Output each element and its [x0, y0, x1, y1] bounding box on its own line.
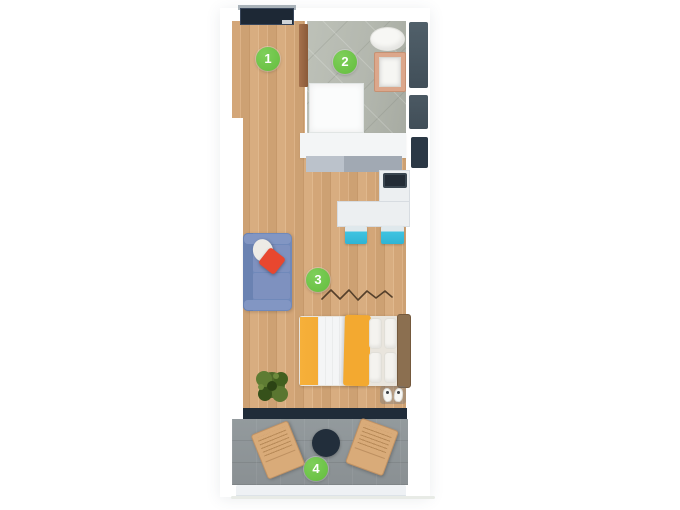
zigzag-cord-icon: [318, 285, 396, 305]
slipper-strap: [397, 391, 400, 394]
balcony-table: [312, 429, 340, 457]
desk-chair: [345, 226, 367, 244]
bed-pillow: [384, 318, 397, 349]
bathroom-door: [299, 24, 308, 87]
bed-pillow: [369, 318, 382, 349]
kitchen-counter: [300, 133, 406, 158]
entrance-door-handle-icon: [282, 20, 292, 24]
plant-icon: [252, 365, 294, 407]
slipper-strap: [386, 391, 389, 394]
room-marker-3[interactable]: 3: [306, 268, 330, 292]
room-marker-1[interactable]: 1: [256, 47, 280, 71]
kitchen-counter-edge-light: [306, 156, 344, 172]
desk-chair: [381, 226, 404, 244]
shower: [309, 83, 364, 133]
bed-pillow: [369, 352, 382, 383]
bed-duvet-fold: [343, 315, 371, 387]
room-marker-2[interactable]: 2: [333, 50, 357, 74]
ground-shadow-line: [231, 496, 435, 499]
desk-wing: [337, 201, 410, 227]
closet-panel: [411, 137, 428, 168]
closet-panel: [409, 22, 428, 88]
sofa-armrest: [244, 300, 291, 310]
bed-pillow: [384, 352, 397, 383]
floorplan-canvas: 1 2 3 4: [0, 0, 680, 510]
sofa-cushion: [253, 273, 290, 299]
room-marker-4[interactable]: 4: [304, 457, 328, 481]
toilet: [370, 27, 405, 51]
bed-runner: [318, 317, 345, 385]
headboard: [397, 314, 411, 388]
monitor: [383, 173, 407, 188]
closet-panel: [409, 95, 428, 129]
sink-basin: [379, 57, 401, 87]
